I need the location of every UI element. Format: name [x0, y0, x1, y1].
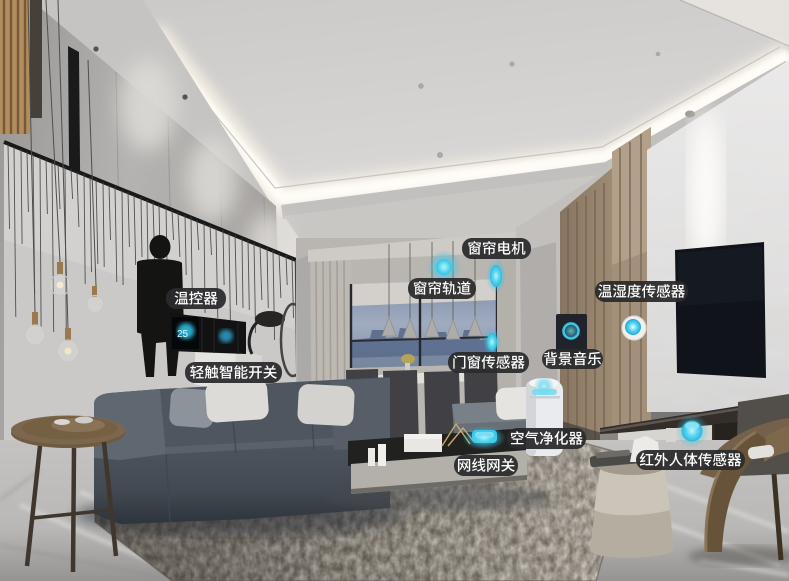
- svg-text:25: 25: [177, 329, 189, 340]
